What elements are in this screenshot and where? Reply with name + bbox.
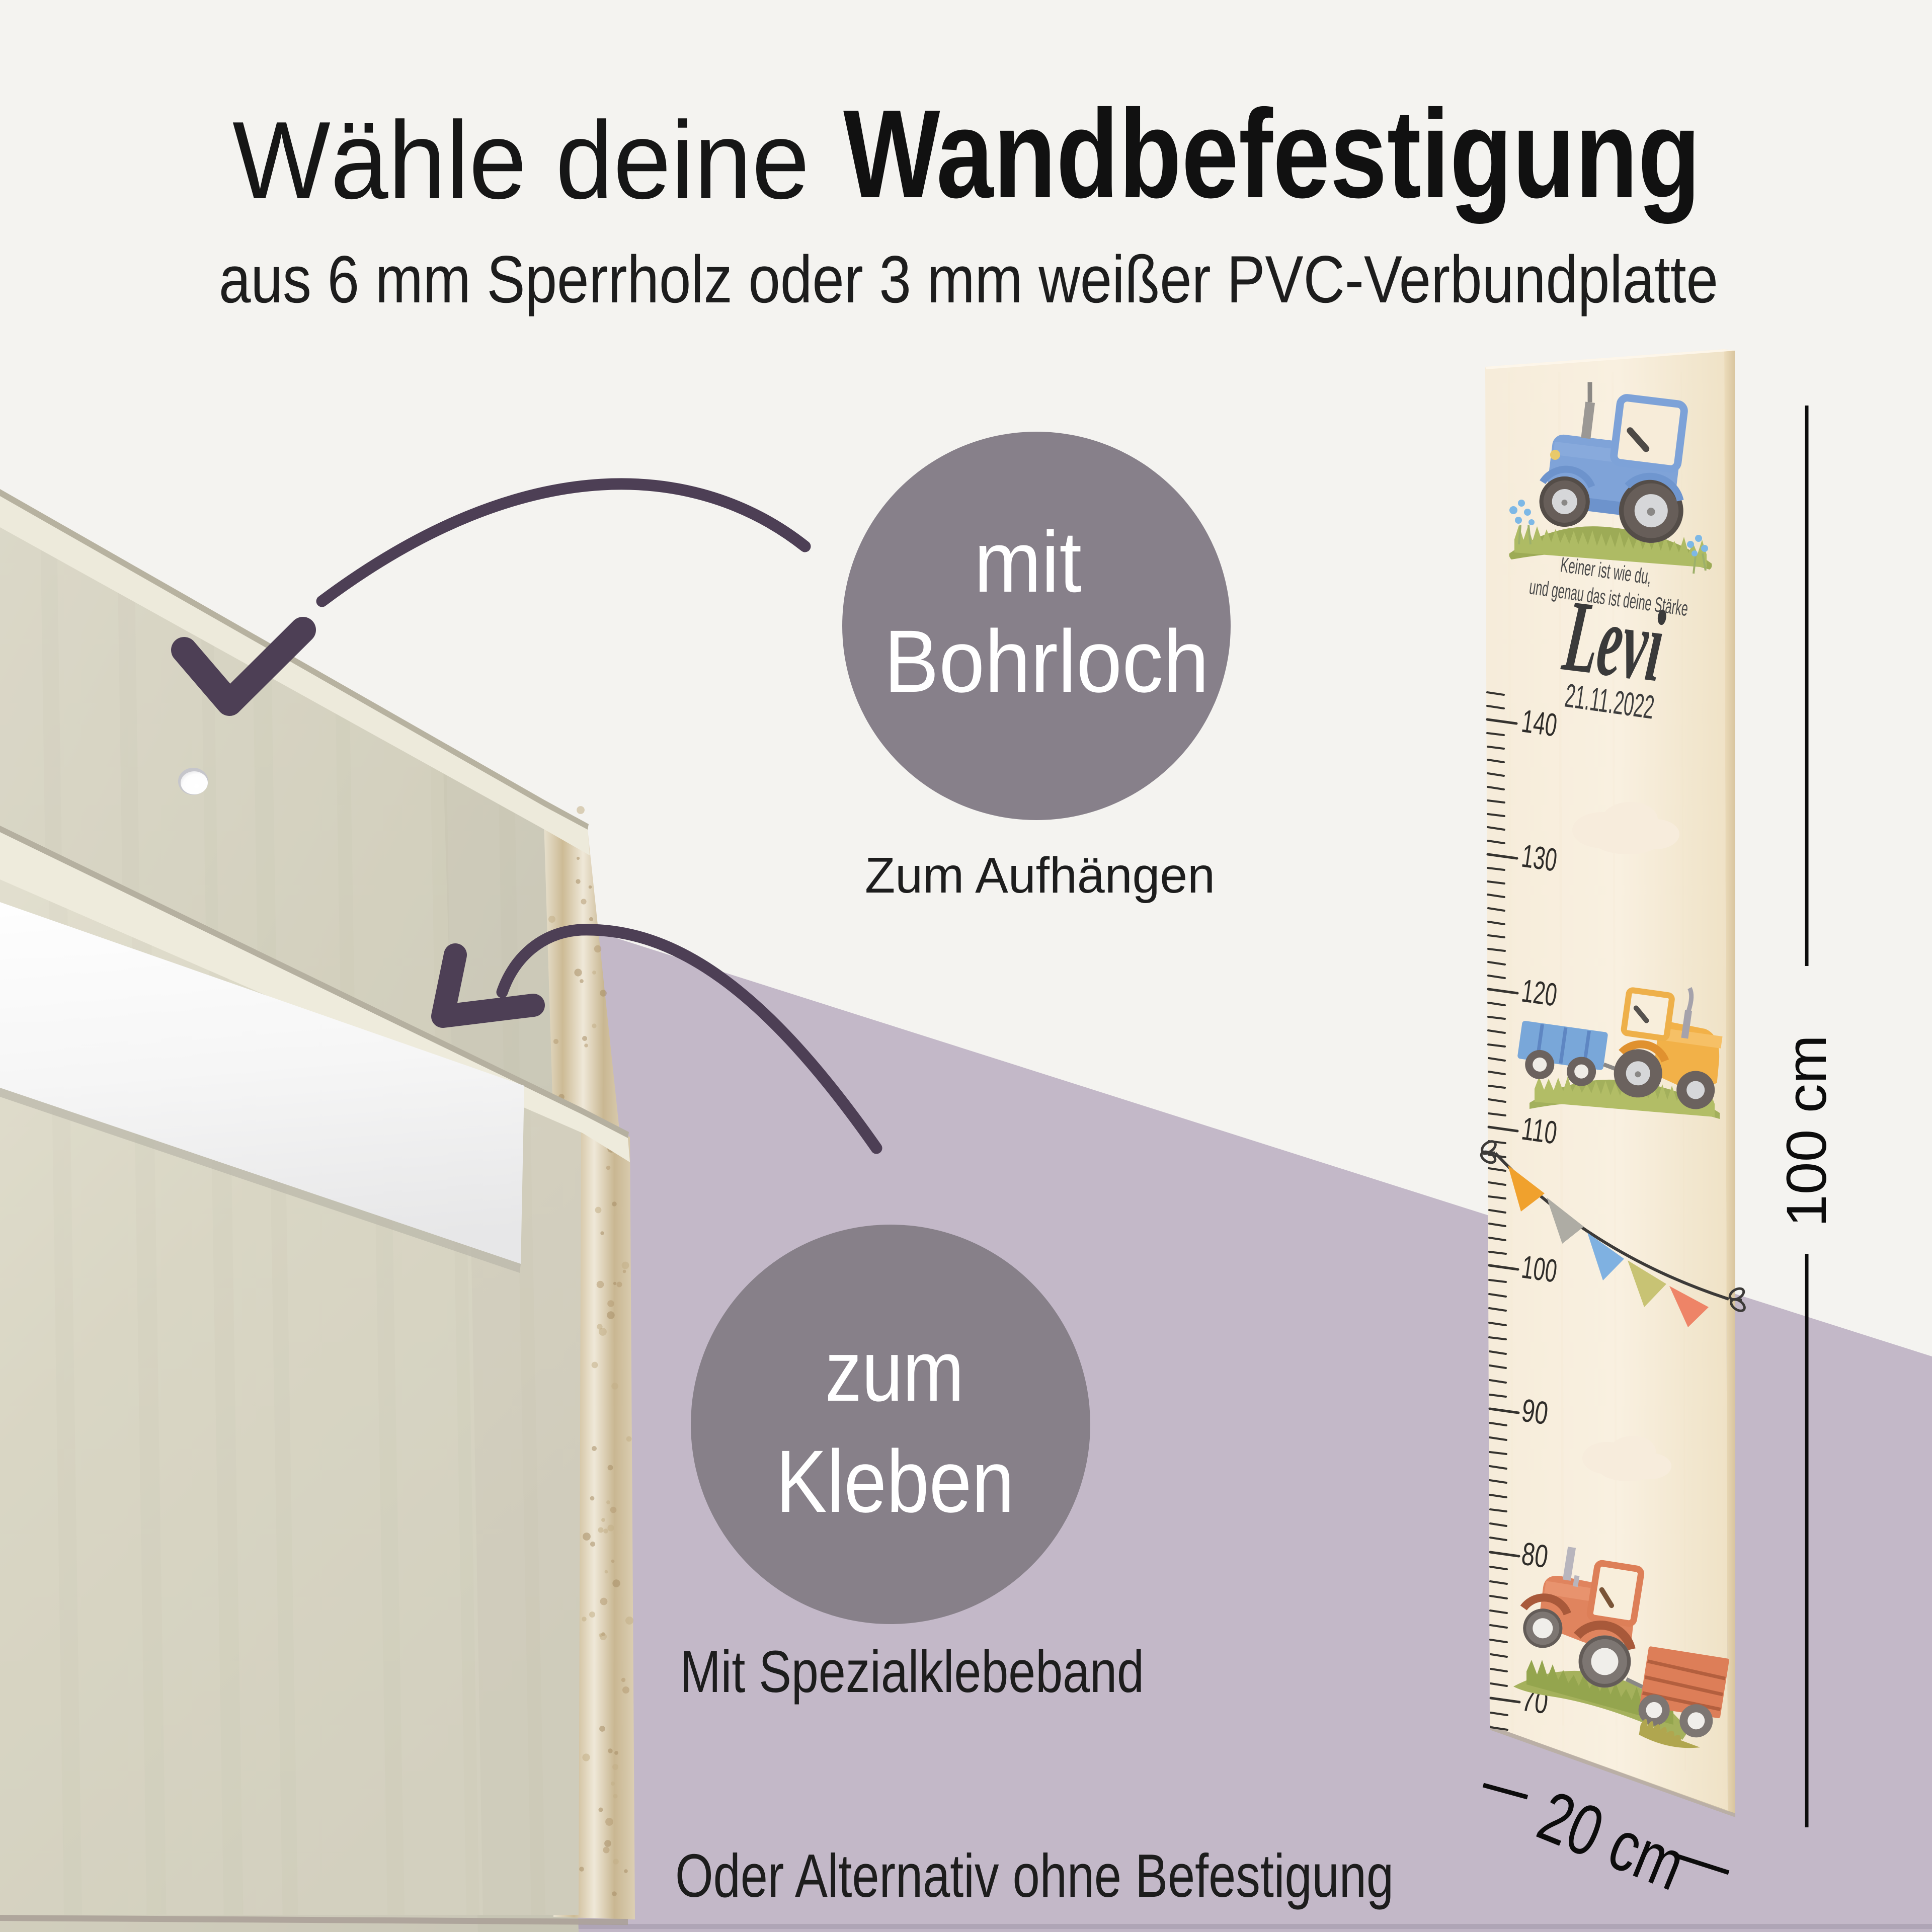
svg-text:100 cm: 100 cm (1775, 1035, 1838, 1227)
svg-text:zum: zum (825, 1323, 964, 1419)
svg-text:100: 100 (1519, 1249, 1559, 1290)
svg-text:130: 130 (1519, 838, 1559, 878)
svg-text:120: 120 (1519, 973, 1559, 1013)
svg-text:110: 110 (1519, 1110, 1559, 1151)
svg-text:Kleben: Kleben (776, 1432, 1014, 1531)
svg-text:Bohrloch: Bohrloch (884, 612, 1209, 711)
svg-text:Wähle deine: Wähle deine (232, 99, 810, 222)
svg-text:Wandbefestigung: Wandbefestigung (843, 84, 1701, 224)
svg-text:80: 80 (1519, 1536, 1551, 1575)
svg-text:mit: mit (974, 514, 1082, 610)
svg-text:aus 6 mm Sperrholz oder 3 mm w: aus 6 mm Sperrholz oder 3 mm weißer PVC-… (219, 243, 1718, 317)
svg-text:Zum Aufhängen: Zum Aufhängen (865, 847, 1215, 904)
svg-text:Mit Spezialklebeband: Mit Spezialklebeband (680, 1639, 1144, 1705)
svg-text:140: 140 (1519, 703, 1559, 744)
svg-text:90: 90 (1519, 1392, 1551, 1432)
svg-text:Oder Alternativ ohne Befestigu: Oder Alternativ ohne Befestigung (675, 1841, 1394, 1910)
